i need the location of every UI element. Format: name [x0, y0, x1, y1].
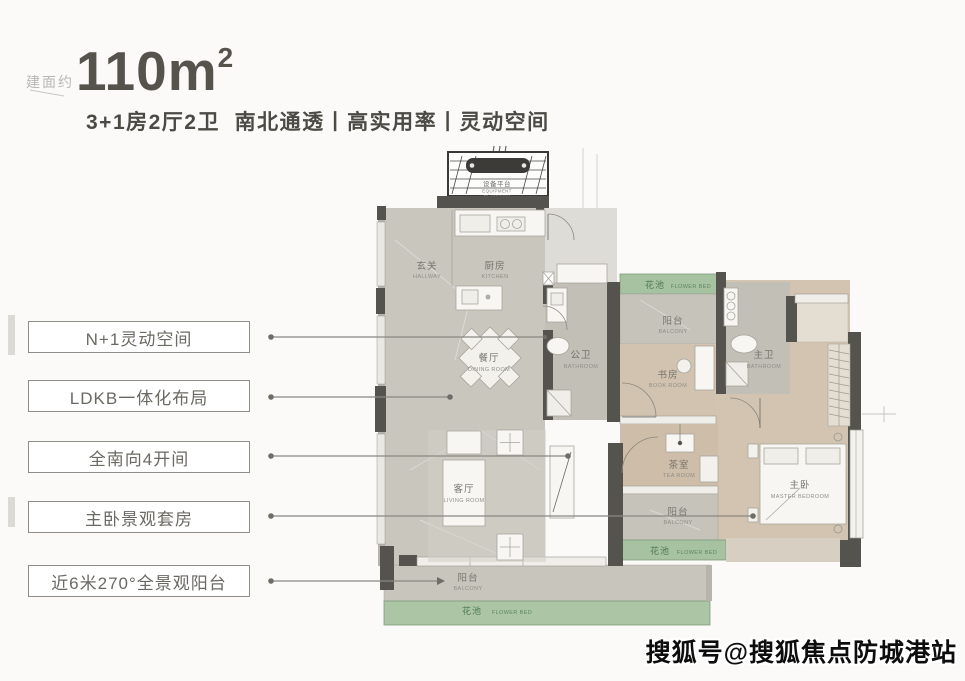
room-label-tea-zh: 茶室 — [668, 459, 689, 471]
room-label-kitchen-en: KITCHEN — [482, 274, 509, 280]
room-floor-balcony-bottom — [384, 565, 710, 601]
page-title: 110m2 — [76, 44, 234, 99]
room-label-equipment-en1: EQUIPMENT — [482, 189, 511, 194]
room-label-balcony-bottom-en: BALCONY — [453, 586, 482, 592]
room-label-balcony-top-en: BALCONY — [658, 329, 687, 335]
guest-bath-toilet — [547, 338, 569, 355]
area-exponent: 2 — [218, 42, 235, 73]
room-label-dining-en: DINING ROOM — [468, 367, 510, 373]
feature-label: 主卧景观套房 — [85, 505, 193, 530]
tagline: 3+1房2厅2卫 南北通透丨高实用率丨灵动空间 — [86, 106, 550, 136]
flower-bed-bottom — [384, 601, 710, 625]
tea-bench — [700, 456, 718, 482]
room-label-living-en: LIVING ROOM — [443, 498, 484, 504]
flower-top-en: FLOWER BED — [671, 284, 711, 290]
room-label-balcony-top-zh: 阳台 — [662, 315, 683, 327]
flower-bottom-en: FLOWER BED — [492, 610, 532, 616]
terrace-strip — [726, 538, 840, 562]
feature-box-n1-space: N+1灵动空间 — [28, 321, 250, 353]
left-edge-bar-1 — [8, 315, 15, 355]
dimension-marks — [862, 406, 896, 422]
room-label-hallway-zh: 玄关 — [416, 260, 437, 272]
room-label-equipment-zh: 设备平台 — [483, 179, 511, 188]
room-label-book-en: BOOK ROOM — [649, 383, 687, 389]
flower-top-zh: 花池 — [645, 279, 665, 290]
stove — [497, 217, 525, 231]
room-label-hallway-en: HALLWAY — [413, 274, 441, 280]
feature-label: 全南向4开间 — [89, 445, 189, 470]
vent-pipe — [466, 158, 530, 173]
feature-label: N+1灵动空间 — [86, 325, 193, 350]
room-label-living-zh: 客厅 — [453, 483, 474, 495]
room-label-book-zh: 书房 — [657, 369, 678, 381]
armchair — [447, 431, 481, 454]
pipe-lines — [583, 148, 597, 209]
room-label-guest-bath-en: BATHROOM — [564, 364, 599, 370]
nightstand-top — [748, 444, 758, 458]
room-label-dining-zh: 餐厅 — [478, 352, 499, 364]
feature-box-master-suite: 主卧景观套房 — [28, 501, 250, 533]
tea-balcony-window — [620, 486, 718, 494]
book-chair — [677, 359, 691, 373]
wardrobe — [828, 344, 850, 426]
room-label-tea-en: TEA ROOM — [663, 473, 695, 479]
room-label-balcony-mid-en: BALCONY — [663, 520, 692, 526]
room-label-master-zh: 主卧 — [789, 479, 810, 491]
room-label-balcony-bottom-zh: 阳台 — [457, 572, 478, 584]
feature-box-south-facing: 全南向4开间 — [28, 441, 250, 473]
shoe-cabinet — [557, 264, 607, 283]
left-edge-bar-2 — [8, 497, 15, 527]
area-value: 110m — [76, 40, 218, 102]
watermark: 搜狐号@搜狐焦点防城港站 — [646, 633, 957, 669]
feature-box-panoramic-balcony: 近6米270°全景观阳台 — [28, 565, 250, 597]
flower-right-en: FLOWER BED — [677, 550, 717, 556]
feature-box-ldkb: LDKB一体化布局 — [28, 380, 250, 412]
room-label-kitchen-zh: 厨房 — [484, 260, 505, 272]
room-label-guest-bath-zh: 公卫 — [570, 350, 591, 361]
dressing-area — [794, 298, 848, 342]
area-prefix-label: 建面约 — [26, 72, 74, 92]
flower-right-zh: 花池 — [650, 545, 670, 556]
room-label-master-en: MASTER BEDROOM — [771, 494, 829, 500]
book-desk — [695, 346, 714, 390]
flower-bottom-zh: 花池 — [462, 605, 482, 616]
room-label-master-bath-zh: 主卫 — [753, 349, 774, 361]
feature-label: LDKB一体化布局 — [70, 384, 208, 409]
equipment-platform: 设备平台 EQUIPMENT PLATFORM — [448, 152, 548, 199]
feature-label: 近6米270°全景观阳台 — [51, 569, 227, 594]
room-label-master-bath-en: BATHROOM — [747, 364, 782, 370]
